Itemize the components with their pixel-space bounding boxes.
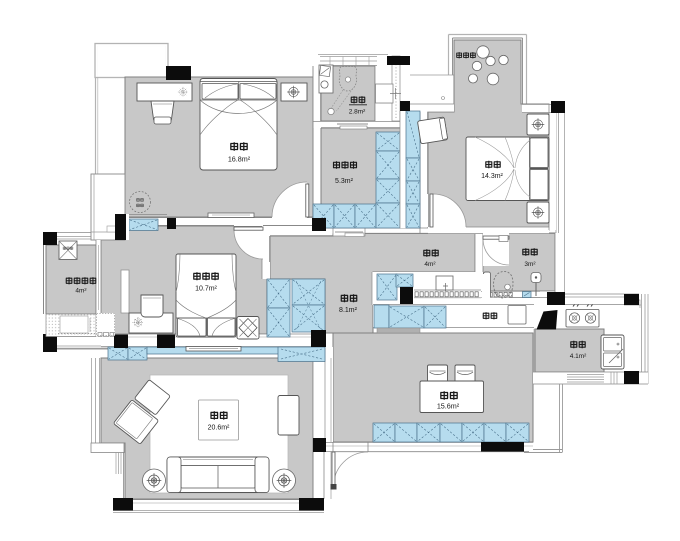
svg-text:4.1m²: 4.1m² — [570, 353, 587, 360]
svg-text:3m²: 3m² — [524, 261, 536, 268]
svg-text:14.3m²: 14.3m² — [481, 173, 503, 180]
svg-text:10.7m²: 10.7m² — [195, 286, 217, 293]
svg-text:4m²: 4m² — [75, 288, 87, 295]
svg-text:2.8m²: 2.8m² — [349, 109, 366, 116]
svg-text:15.6m²: 15.6m² — [437, 402, 460, 411]
svg-text:20.6m²: 20.6m² — [208, 425, 230, 432]
svg-text:5.3m²: 5.3m² — [335, 178, 354, 185]
svg-text:16.8m²: 16.8m² — [228, 155, 251, 164]
svg-text:8.1m²: 8.1m² — [339, 307, 358, 314]
svg-text:4m²: 4m² — [424, 261, 436, 268]
